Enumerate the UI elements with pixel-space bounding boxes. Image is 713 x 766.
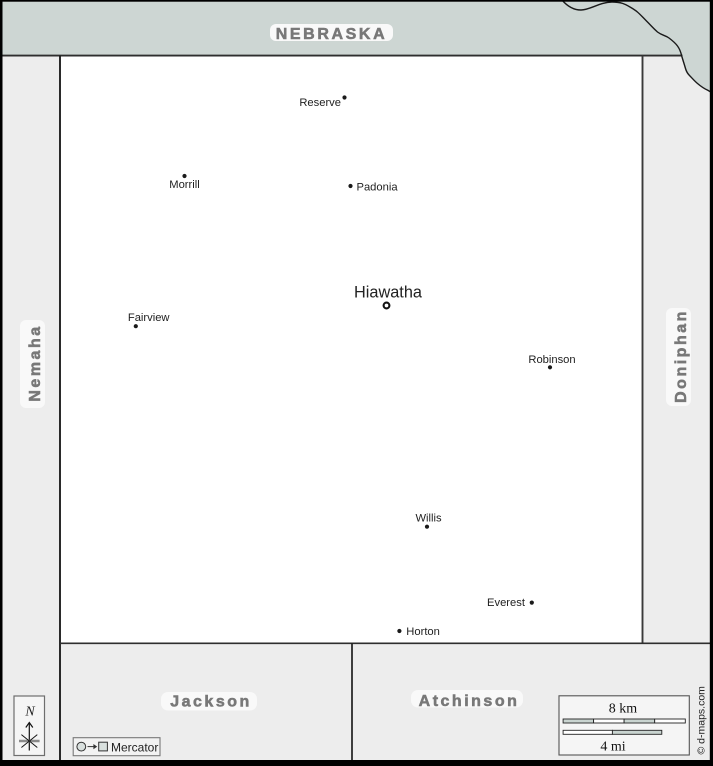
svg-text:Robinson: Robinson [528,354,575,366]
svg-text:Atchinson: Atchinson [419,693,520,710]
svg-text:Morrill: Morrill [169,179,199,191]
svg-text:NEBRASKA: NEBRASKA [276,26,387,43]
svg-text:Padonia: Padonia [357,181,399,193]
svg-text:Nemaha: Nemaha [27,324,44,401]
svg-text:Reserve: Reserve [299,97,341,109]
svg-text:Mercator: Mercator [111,740,158,754]
svg-text:N: N [24,705,35,720]
svg-text:Fairview: Fairview [128,312,171,324]
svg-text:Hiawatha: Hiawatha [354,283,423,301]
svg-text:Doniphan: Doniphan [673,309,690,403]
svg-text:Horton: Horton [406,626,440,638]
svg-text:Willis: Willis [415,513,442,525]
svg-text:4 mi: 4 mi [600,740,625,755]
svg-text:8 km: 8 km [609,702,638,717]
svg-text:Jackson: Jackson [170,694,252,711]
svg-text:Everest: Everest [487,597,526,609]
svg-text:© d-maps.com: © d-maps.com [695,686,707,755]
